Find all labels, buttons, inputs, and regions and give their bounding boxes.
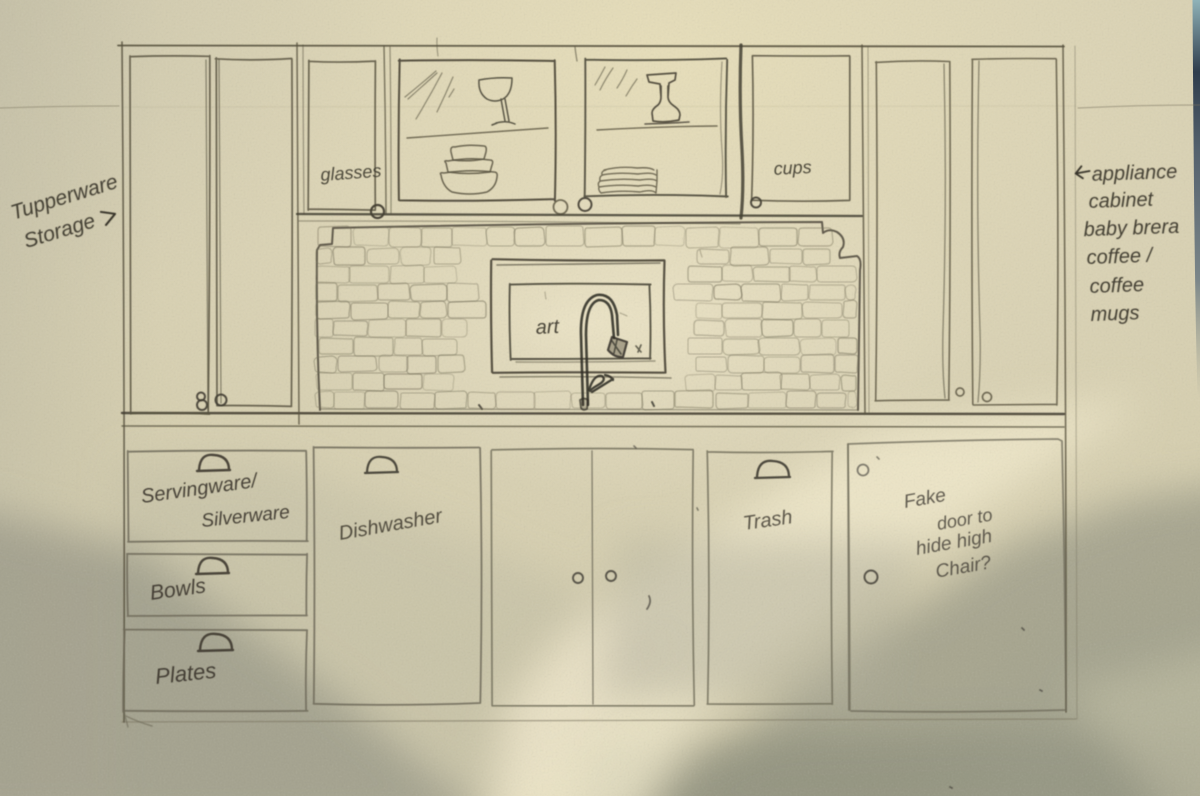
svg-text:glasses: glasses <box>320 161 382 185</box>
svg-text:cabinet: cabinet <box>1088 189 1155 213</box>
svg-text:art: art <box>535 316 561 339</box>
svg-text:baby brera: baby brera <box>1083 216 1179 241</box>
svg-text:cups: cups <box>773 157 812 179</box>
svg-text:coffee: coffee <box>1089 274 1144 298</box>
svg-text:coffee /: coffee / <box>1086 245 1155 269</box>
svg-text:mugs: mugs <box>1090 302 1140 326</box>
svg-text:appliance: appliance <box>1091 161 1177 186</box>
